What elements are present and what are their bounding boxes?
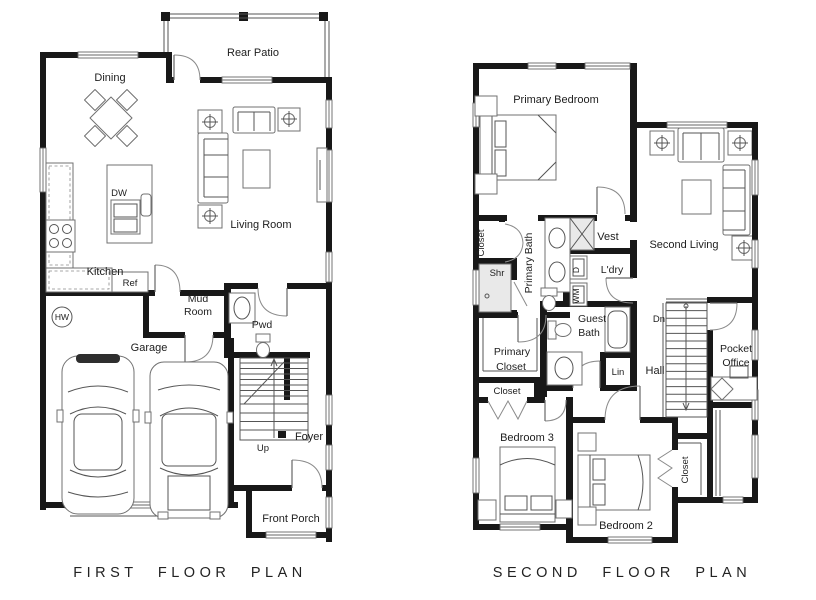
room-label-guest-bath: Bath (578, 327, 600, 339)
wall-segment (319, 12, 328, 21)
room-label-closet: Closet (476, 229, 487, 256)
wall-segment (326, 202, 332, 252)
nightstand (475, 174, 497, 194)
room-label-laundry: L'dry (601, 264, 624, 276)
wall-segment (713, 402, 758, 408)
nightstand (556, 500, 572, 518)
second-floor-title: SECOND FLOOR PLAN (493, 565, 751, 581)
bedroom2-door-arc (605, 386, 640, 420)
label-refrigerator: Ref (123, 278, 138, 289)
nightstand (578, 433, 596, 451)
car-left (57, 354, 139, 514)
wall-segment (326, 282, 332, 395)
bath-vanity (545, 218, 570, 292)
room-label-living-room: Living Room (230, 219, 291, 231)
wall-segment (246, 491, 252, 538)
wall-segment (473, 312, 518, 318)
closet-bifold-door (658, 450, 672, 487)
room-label-foyer: Foyer (295, 431, 323, 443)
coffee-table (243, 150, 270, 188)
wall-segment (246, 532, 266, 538)
wall-segment (727, 122, 758, 128)
wall-segment (600, 352, 606, 391)
wall-segment (672, 497, 713, 503)
car-mirror (145, 412, 151, 423)
wall-segment (322, 485, 332, 491)
wall-segment (630, 303, 637, 391)
powder-door-arc (258, 288, 287, 316)
room-label-mud-room: Room (184, 306, 212, 318)
laundry-door-arc (606, 278, 633, 303)
room-label-bedroom2: Bedroom 2 (599, 520, 653, 532)
wall-segment (625, 215, 637, 221)
closet-french-door-arc (505, 224, 523, 243)
front-door-arc (292, 460, 322, 488)
bedroom2-furniture (578, 433, 650, 525)
wall-segment (640, 417, 678, 423)
room-label-pocket-office: Pocket (720, 343, 752, 355)
nightstand (578, 507, 596, 525)
stairs-first-floor (240, 358, 308, 440)
label-dishwasher: DW (111, 188, 127, 199)
label-dryer: D (571, 267, 581, 273)
wall-segment (527, 397, 545, 403)
toilet-bowl (543, 296, 556, 311)
room-label-second-living: Second Living (649, 239, 718, 251)
wall-segment (473, 63, 528, 69)
stairs-second-floor (666, 303, 707, 417)
wall-segment (473, 397, 488, 403)
garage-entry-door-arc (185, 335, 213, 362)
room-label-closet-bedroom2: Closet (680, 456, 691, 483)
wall-segment (272, 77, 332, 83)
room-label-rear-patio: Rear Patio (227, 47, 279, 59)
wall-segment (200, 77, 222, 83)
wall-segment (566, 397, 573, 543)
room-label-shower: Shr (490, 268, 505, 279)
wall-segment (479, 377, 540, 383)
wall-segment (326, 77, 332, 100)
sofa (723, 165, 750, 235)
wall-segment (278, 431, 286, 438)
wall-segment (473, 524, 500, 530)
car-roof-front (76, 354, 120, 363)
room-label-primary-bedroom: Primary Bedroom (513, 94, 599, 106)
wall-segment (752, 420, 758, 435)
wall-segment (40, 52, 46, 148)
primary-bedroom-furniture (475, 96, 556, 194)
label-stairs-up: Up (257, 443, 269, 454)
car-mirror (227, 412, 233, 423)
wall-segment (637, 122, 667, 128)
tv-console (317, 148, 327, 202)
wall-segment (287, 283, 332, 289)
wall-segment (511, 258, 517, 280)
nightstand (478, 500, 496, 520)
car-right (145, 362, 233, 519)
nightstand (475, 96, 497, 116)
wall-segment (239, 12, 248, 21)
bathtub (605, 307, 630, 352)
car-mirror (133, 410, 139, 422)
room-label-primary-bath: Primary Bath (523, 233, 535, 294)
room-label-dining: Dining (94, 72, 125, 84)
dining-set (85, 90, 138, 147)
label-stairs-down: Dn (653, 314, 665, 325)
room-label-garage: Garage (131, 342, 168, 354)
wall-segment (672, 487, 678, 543)
wall-segment (630, 240, 637, 278)
bed (578, 455, 650, 510)
wall-segment (546, 312, 570, 318)
room-label-front-porch: Front Porch (262, 513, 319, 525)
room-label-closet-bedroom3: Closet (494, 386, 521, 397)
wall-segment (213, 332, 230, 338)
room-label-vest: Vest (597, 231, 618, 243)
wall-segment (707, 330, 713, 503)
toilet-tank (541, 288, 557, 296)
patio-door-arc (174, 55, 200, 80)
first-floor-title: FIRST FLOOR PLAN (73, 565, 307, 581)
car-wheel (158, 512, 168, 519)
wall-segment (708, 297, 758, 303)
wall-segment (326, 425, 332, 445)
room-label-pocket-office: Office (722, 357, 749, 369)
primary-bedroom-door-arc (597, 187, 625, 214)
toilet-tank (256, 334, 270, 342)
bed (480, 115, 556, 180)
wall-segment (161, 12, 170, 21)
wall-segment (752, 478, 758, 503)
car-mirror (57, 410, 63, 422)
mudroom-door-arc (155, 265, 180, 292)
wall-segment (752, 195, 758, 240)
room-label-powder: Pwd (252, 319, 273, 331)
room-label-hall: Hall (646, 365, 665, 377)
label-water-heater: HW (55, 312, 69, 322)
room-label-linen: Lin (612, 367, 625, 378)
island-sink (141, 194, 151, 216)
wall-segment (556, 63, 585, 69)
room-label-bedroom3: Bedroom 3 (500, 432, 554, 444)
pocket-office-door-arc (710, 303, 737, 330)
coffee-table (682, 180, 711, 214)
stove (46, 220, 75, 252)
wall-segment (231, 283, 258, 289)
wall-segment (326, 470, 332, 497)
wall-segment (143, 332, 185, 338)
wall-segment (573, 417, 605, 423)
wall-segment (707, 497, 723, 503)
wall-segment (566, 537, 608, 543)
car-wheel (210, 512, 220, 519)
toilet-bowl (257, 343, 270, 358)
wall-segment (473, 305, 479, 458)
wall-segment (166, 77, 174, 83)
closet-bifold-door (488, 401, 527, 419)
room-label-mud-room: Mud (188, 293, 209, 305)
wall-segment (316, 532, 332, 538)
sofa (198, 133, 228, 203)
label-washer: WM (571, 288, 581, 303)
second-floor-plan: Primary Bedroom Closet Shr Primary Bath … (473, 63, 758, 581)
room-label-kitchen: Kitchen (87, 266, 124, 278)
wall-segment (326, 128, 332, 150)
room-label-primary-closet: Primary (494, 346, 531, 358)
room-label-guest-bath: Guest (578, 313, 606, 325)
wall-segment (499, 215, 505, 222)
bedroom3-door-arc (545, 400, 566, 421)
wall-segment (630, 63, 637, 222)
wall-segment (40, 192, 46, 510)
wall-segment (228, 485, 292, 491)
bedroom3-furniture (478, 447, 572, 522)
room-label-primary-closet: Closet (496, 361, 526, 373)
toilet-bowl (555, 324, 571, 337)
floor-plan-sheet: Rear Patio Dining Living Room Kitchen DW… (0, 0, 816, 600)
wall-segment (40, 502, 65, 508)
wall-segment (143, 296, 149, 338)
wall-segment (540, 385, 573, 391)
